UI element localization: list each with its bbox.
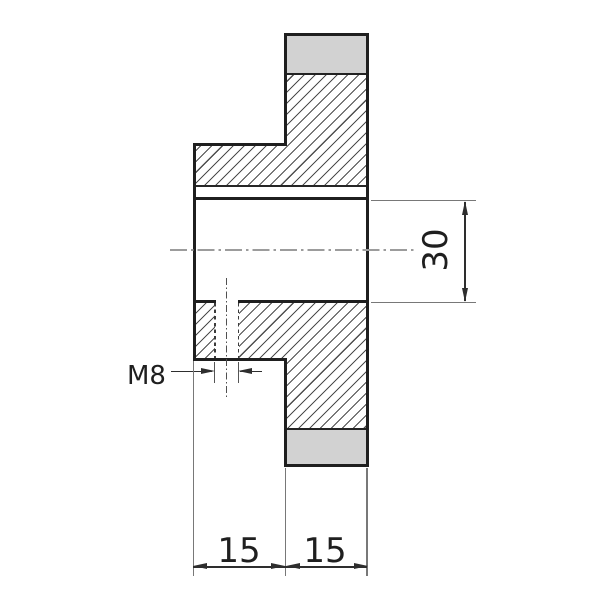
hub-left-edge: [193, 143, 196, 361]
dim15-left-label: 15: [217, 534, 260, 568]
tapped-hole-centerline: [226, 278, 227, 397]
dim15-extension-middle: [285, 468, 286, 576]
bore-top-line: [193, 197, 366, 200]
m8-leader-line-right: [240, 371, 262, 372]
dim30-label: 30: [419, 228, 453, 271]
bore-bottom-line-left: [193, 300, 216, 303]
dim15-arrow-mid-right: [286, 563, 300, 569]
dim30-arrow-top: [462, 201, 468, 215]
hatch-upper-section: [196, 75, 366, 185]
rim-band-top: [287, 36, 366, 75]
hub-step-upper: [193, 143, 287, 146]
dim15-arrow-far-right: [354, 563, 368, 569]
tapped-hole-edge-left: [214, 303, 215, 358]
technical-drawing: M8 30 15 15: [0, 0, 600, 600]
keyway-line: [196, 185, 366, 187]
dim15-arrow-mid-left: [271, 563, 285, 569]
dim30-arrow-bottom: [462, 288, 468, 302]
outline-bottom-edge: [284, 464, 369, 467]
dim30-extension-bottom: [371, 302, 476, 303]
dim15-right-label: 15: [303, 534, 346, 568]
dim30-extension-top: [371, 200, 476, 201]
bore-bottom-line-right: [238, 300, 366, 303]
outline-left-edge-lower: [284, 358, 287, 467]
rim-band-bottom: [287, 428, 366, 464]
tapped-hole-edge-right: [238, 303, 239, 358]
outline-left-edge-upper: [284, 33, 287, 146]
outline-top-edge: [284, 33, 369, 36]
bore-centerline: [170, 249, 417, 251]
hatch-lower-section: [196, 303, 366, 428]
thread-callout-label: M8: [127, 363, 166, 389]
dim15-extension-right: [366, 468, 367, 576]
dim15-arrow-far-left: [193, 563, 207, 569]
hub-step-lower: [193, 358, 287, 361]
m8-arrow-left: [201, 368, 215, 374]
dim15-extension-left: [193, 361, 194, 576]
dim30-line: [464, 202, 465, 301]
